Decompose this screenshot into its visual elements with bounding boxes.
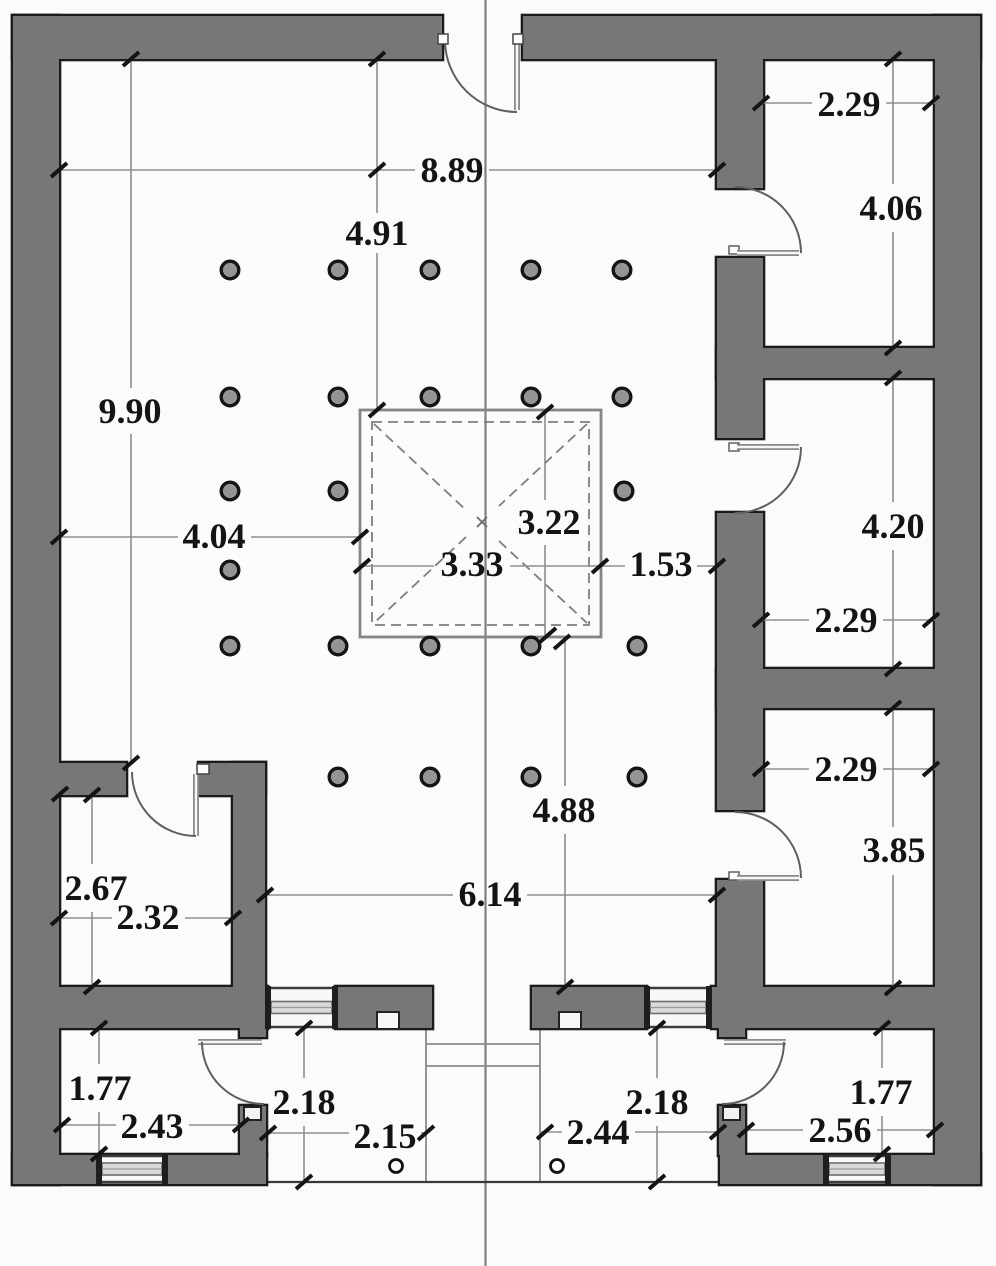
svg-text:4.91: 4.91 [346,213,409,253]
svg-text:1.77: 1.77 [850,1072,913,1112]
svg-text:2.32: 2.32 [117,897,180,937]
svg-text:2.56: 2.56 [809,1110,872,1150]
svg-text:3.22: 3.22 [518,502,581,542]
svg-text:2.18: 2.18 [273,1082,336,1122]
svg-text:2.15: 2.15 [354,1116,417,1156]
svg-text:8.89: 8.89 [421,150,484,190]
svg-text:4.20: 4.20 [862,506,925,546]
svg-text:3.85: 3.85 [863,830,926,870]
svg-text:2.44: 2.44 [567,1112,630,1152]
svg-text:2.29: 2.29 [815,600,878,640]
svg-text:2.29: 2.29 [815,749,878,789]
svg-text:1.77: 1.77 [69,1068,132,1108]
svg-text:1.53: 1.53 [630,544,693,584]
svg-text:6.14: 6.14 [459,874,522,914]
svg-text:2.18: 2.18 [626,1082,689,1122]
svg-text:2.43: 2.43 [121,1106,184,1146]
svg-text:4.88: 4.88 [533,790,596,830]
svg-text:9.90: 9.90 [99,391,162,431]
svg-text:4.04: 4.04 [183,516,246,556]
svg-text:3.33: 3.33 [441,544,504,584]
svg-text:4.06: 4.06 [860,188,923,228]
svg-text:2.29: 2.29 [818,84,881,124]
